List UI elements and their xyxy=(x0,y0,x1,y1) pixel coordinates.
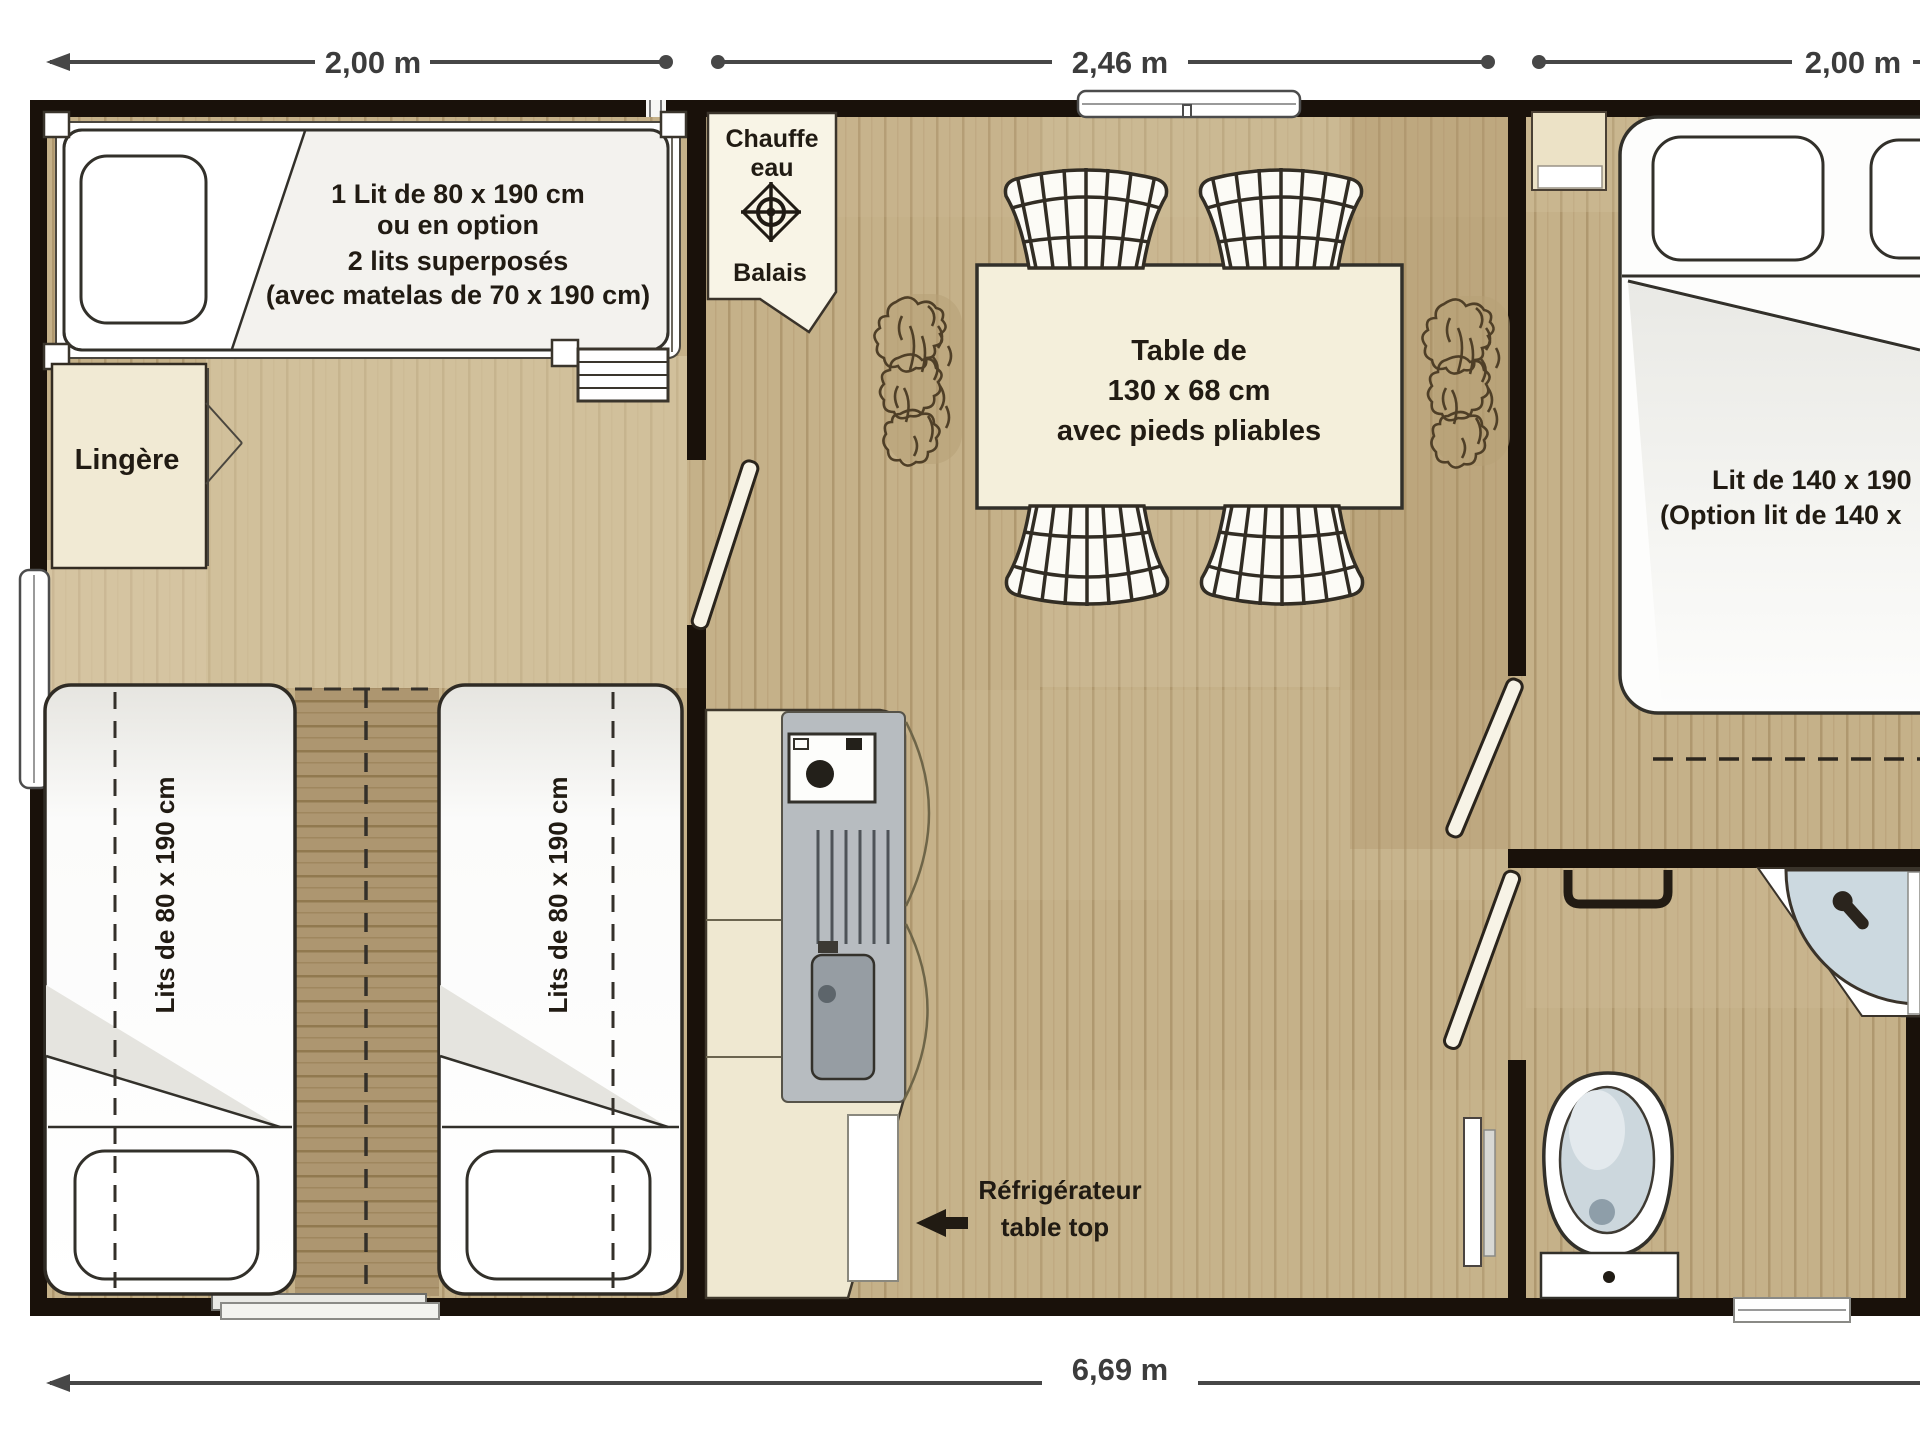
svg-text:avec pieds pliables: avec pieds pliables xyxy=(1057,415,1321,447)
svg-text:(Option lit de 140 x: (Option lit de 140 x xyxy=(1660,500,1902,530)
svg-text:2,00 m: 2,00 m xyxy=(325,45,422,80)
svg-text:2 lits superposés: 2 lits superposés xyxy=(348,246,569,276)
svg-text:(avec matelas de 70 x 190 cm): (avec matelas de 70 x 190 cm) xyxy=(266,280,650,310)
svg-text:Réfrigérateur: Réfrigérateur xyxy=(978,1175,1141,1205)
svg-text:Chauffe: Chauffe xyxy=(725,125,818,153)
svg-text:2,00 m: 2,00 m xyxy=(1805,45,1902,80)
svg-text:ou en option: ou en option xyxy=(377,210,539,240)
svg-text:Table de: Table de xyxy=(1131,335,1247,367)
svg-text:Lingère: Lingère xyxy=(75,444,180,476)
svg-text:1 Lit de 80 x 190 cm: 1 Lit de 80 x 190 cm xyxy=(331,179,585,209)
svg-text:Balais: Balais xyxy=(733,259,807,287)
svg-text:6,69 m: 6,69 m xyxy=(1072,1352,1169,1387)
svg-text:Lit de 140 x 190: Lit de 140 x 190 xyxy=(1712,465,1912,495)
svg-text:table top: table top xyxy=(1001,1212,1109,1242)
svg-text:eau: eau xyxy=(750,154,793,182)
svg-text:Lits de 80 x 190 cm: Lits de 80 x 190 cm xyxy=(543,776,573,1013)
svg-text:2,46 m: 2,46 m xyxy=(1072,45,1169,80)
svg-text:130 x 68 cm: 130 x 68 cm xyxy=(1108,375,1271,407)
svg-text:Lits de 80 x 190 cm: Lits de 80 x 190 cm xyxy=(150,776,180,1013)
